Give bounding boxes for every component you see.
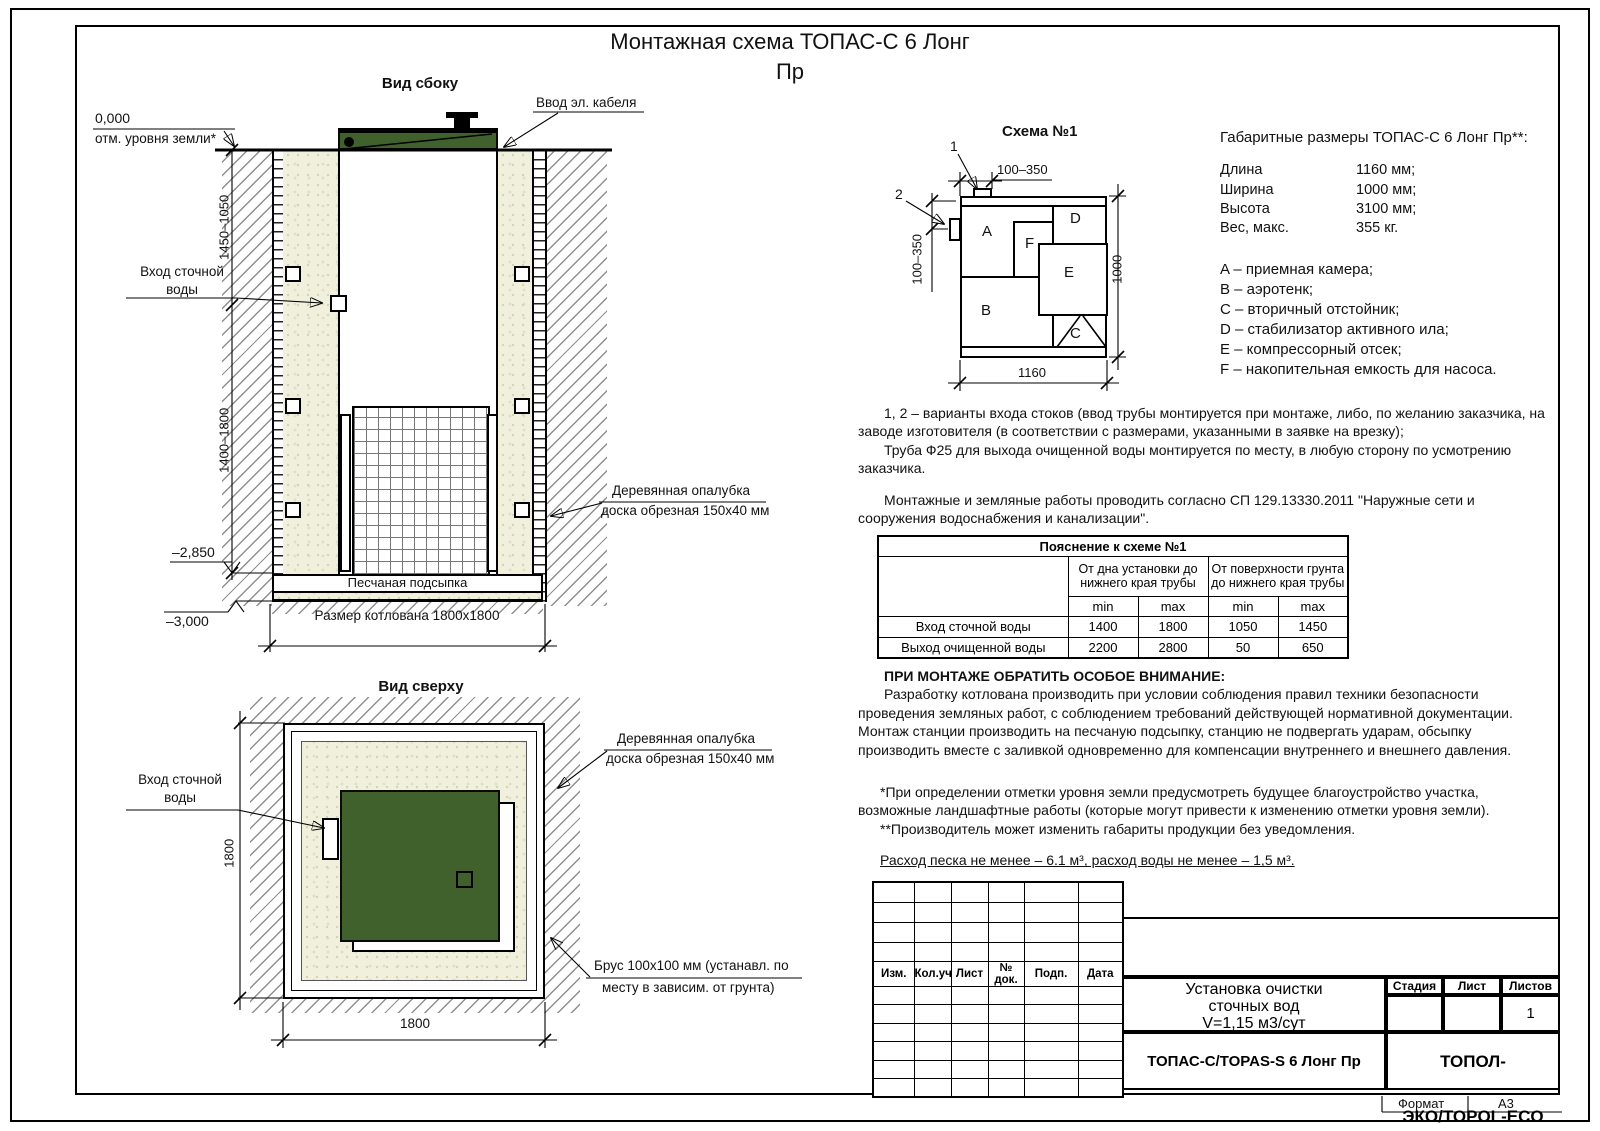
empty-cell (914, 1042, 951, 1061)
empty-cell (873, 902, 914, 922)
empty-cell (873, 1060, 914, 1079)
empty-cell (988, 942, 1024, 961)
empty-cell (988, 1079, 1024, 1098)
col-header-podp: Подп. (1024, 961, 1078, 986)
wall-block (285, 398, 301, 414)
sheet-title-line2: Пр (540, 60, 1040, 85)
empty-cell (1024, 1005, 1078, 1024)
empty-cell (951, 986, 988, 1005)
specs-heading: Габаритные размеры ТОПАС-С 6 Лонг Пр**: (1220, 130, 1528, 147)
empty-cell (1024, 882, 1078, 902)
attention-body: Разработку котлована производить при усл… (858, 685, 1550, 759)
table-min-header: min (1068, 596, 1138, 616)
col-header-koluch: Кол.уч. (914, 961, 951, 986)
compartment-a-label: A (982, 224, 992, 241)
schema-dim-right: 1000 (1111, 237, 1126, 301)
note-outlet-pipe: Труба Ф25 для выхода очищенной воды монт… (858, 441, 1550, 478)
footnote-manufacturer: **Производитель может изменить габариты … (858, 820, 1550, 838)
sand-bedding-label: Песчаная подсыпка (272, 576, 543, 591)
empty-cell (988, 902, 1024, 922)
empty-cell (1024, 902, 1078, 922)
schema-dim-bottom: 1160 (1010, 366, 1054, 381)
col-header-data: Дата (1078, 961, 1123, 986)
empty-cell (951, 922, 988, 942)
row-value: 1800 (1138, 616, 1208, 637)
compartment-e-label: E (1064, 265, 1074, 282)
schema-inlet-stub-2 (949, 218, 961, 241)
empty-cell (873, 922, 914, 942)
note-variants: 1, 2 – варианты входа стоков (ввод трубы… (858, 404, 1550, 441)
empty-cell (1078, 1023, 1123, 1042)
spec-value: 355 кг. (1356, 220, 1398, 236)
project-name-line1: Установка очистки (1124, 981, 1384, 998)
format-value: А3 (1498, 1097, 1514, 1112)
row-value: 650 (1278, 637, 1348, 658)
empty-cell (873, 942, 914, 961)
pit-size-label: Размер котлована 1800х1800 (262, 608, 552, 623)
sheets-header-cell: Листов (1501, 977, 1560, 995)
ballast-post-right (487, 414, 498, 572)
row-value: 50 (1208, 637, 1278, 658)
soil-hatch-right (543, 150, 607, 606)
company-cell: ТОПОЛ-ЭКО/TOPOL-ECO (1386, 1032, 1560, 1090)
sheet-title-line1: Монтажная схема ТОПАС-С 6 Лонг (540, 30, 1040, 55)
empty-cell (951, 902, 988, 922)
stage-header-cell: Стадия (1386, 977, 1443, 995)
legend-item: A – приемная камера; (1220, 262, 1373, 279)
empty-cell (988, 1060, 1024, 1079)
dim-1400-1800: 1400–1800 (218, 405, 233, 475)
sheet-value-cell (1443, 995, 1501, 1032)
empty-cell (1024, 1060, 1078, 1079)
empty-cell (1078, 882, 1123, 902)
tv-inlet-stub (322, 818, 339, 860)
col-header-ndok: № док. (988, 961, 1024, 986)
tv-dim-bottom-1800: 1800 (383, 1016, 447, 1031)
tv-hatch-opening (456, 871, 473, 888)
empty-cell (873, 882, 914, 902)
schema-inlet-stub-1 (973, 188, 992, 198)
empty-cell (914, 1060, 951, 1079)
empty-cell (951, 1079, 988, 1098)
cable-entry-label: Ввод эл. кабеля (536, 95, 636, 110)
empty-cell (914, 882, 951, 902)
empty-cell (1078, 1060, 1123, 1079)
note-sp-standard: Монтажные и земляные работы проводить со… (858, 491, 1550, 528)
empty-cell (1078, 986, 1123, 1005)
empty-cell (914, 922, 951, 942)
inlet-label-line2: воды (130, 282, 234, 297)
row-name: Вход сточной воды (878, 616, 1068, 637)
attention-heading: ПРИ МОНТАЖЕ ОБРАТИТЬ ОСОБОЕ ВНИМАНИЕ: (858, 667, 1550, 685)
row-name: Выход очищенной воды (878, 637, 1068, 658)
lid-knob (344, 137, 354, 147)
notes-block: 1, 2 – варианты входа стоков (ввод трубы… (858, 404, 1550, 528)
ballast-grid (352, 406, 490, 576)
unit-lid (338, 128, 498, 150)
elevation-3000: –3,000 (166, 614, 209, 630)
compartment-c-label: C (1070, 326, 1081, 343)
compartment-f-label: F (1025, 236, 1034, 253)
row-value: 2200 (1068, 637, 1138, 658)
project-name-line3: V=1,15 м3/сут (1124, 1015, 1384, 1032)
consumption-note: Расход песка не менее – 6.1 м³, расход в… (858, 851, 1550, 869)
legend-item: B – аэротенк; (1220, 282, 1313, 299)
table-row: Вход сточной воды 1400 1800 1050 1450 (878, 616, 1348, 637)
schema-caption: Схема №1 (1002, 124, 1077, 141)
table-max-header: max (1138, 596, 1208, 616)
empty-cell (873, 986, 914, 1005)
compartment-b-label: B (981, 303, 991, 320)
empty-cell (1078, 1005, 1123, 1024)
drawing-sheet: Монтажная схема ТОПАС-С 6 Лонг Пр Вид сб… (0, 0, 1600, 1131)
empty-cell (988, 1042, 1024, 1061)
footnotes-block: *При определении отметки уровня земли пр… (858, 783, 1550, 870)
elevation-2850: –2,850 (172, 545, 215, 561)
side-view-caption: Вид сбоку (350, 76, 490, 93)
legend-item: E – компрессорный отсек; (1220, 342, 1402, 359)
dim-1450-1050: 1450–1050 (218, 192, 233, 262)
table-group2-header: От поверхности грунта до нижнего края тр… (1208, 556, 1348, 596)
empty-cell (951, 1042, 988, 1061)
row-value: 1450 (1278, 616, 1348, 637)
empty-cell (951, 1060, 988, 1079)
spec-value: 1000 мм; (1356, 182, 1416, 198)
table-title: Пояснение к схеме №1 (878, 536, 1348, 556)
empty-cell (1024, 942, 1078, 961)
col-header-list: Лист (951, 961, 988, 986)
tv-formwork-label-line2: доска обрезная 150х40 мм (606, 751, 774, 766)
spec-label: Длина (1220, 162, 1262, 178)
tv-dim-left-1800: 1800 (223, 823, 238, 883)
row-value: 2800 (1138, 637, 1208, 658)
table-row: Выход очищенной воды 2200 2800 50 650 (878, 637, 1348, 658)
empty-cell (951, 1005, 988, 1024)
schema-callout-1: 1 (950, 139, 958, 155)
empty-cell (873, 1079, 914, 1098)
empty-cell (1024, 986, 1078, 1005)
schema-bottom-line (960, 346, 1107, 348)
formwork-label-line2: доска обрезная 150х40 мм (601, 503, 769, 518)
empty-cell (1024, 922, 1078, 942)
schema-top-line (960, 205, 1107, 207)
top-view-caption: Вид сверху (356, 679, 486, 696)
empty-cell (914, 1005, 951, 1024)
empty-cell (988, 882, 1024, 902)
empty-cell (1024, 1079, 1078, 1098)
empty-cell (1078, 1042, 1123, 1061)
formwork-board-right (532, 150, 547, 602)
explanation-table: Пояснение к схеме №1 От дна установки до… (877, 535, 1349, 659)
tv-inlet-label-line2: воды (128, 790, 232, 805)
tv-inlet-label-line1: Вход сточной (128, 772, 232, 787)
legend-item: D – стабилизатор активного ила; (1220, 322, 1449, 339)
col-header-izm: Изм. (873, 961, 914, 986)
empty-cell (873, 1042, 914, 1061)
spec-value: 1160 мм; (1356, 162, 1415, 178)
project-name-cell: Установка очистки сточных вод V=1,15 м3/… (1122, 977, 1386, 1032)
ballast-post-left (340, 414, 351, 572)
empty-cell (1024, 1023, 1078, 1042)
empty-cell (1078, 1079, 1123, 1098)
project-name-line2: сточных вод (1124, 998, 1384, 1015)
zero-mark-label: 0,000 (95, 111, 130, 127)
empty-cell (914, 902, 951, 922)
wall-block (285, 266, 301, 282)
spec-label: Вес, макс. (1220, 220, 1289, 236)
model-cell: ТОПАС-С/TOPAS-S 6 Лонг Пр (1122, 1032, 1386, 1090)
empty-cell (873, 1005, 914, 1024)
table-group1-header: От дна установки до нижнего края трубы (1068, 556, 1208, 596)
spec-value: 3100 мм; (1356, 201, 1416, 217)
vent-stem (454, 118, 470, 129)
format-label: Формат (1398, 1097, 1444, 1112)
compartment-d-label: D (1070, 211, 1081, 228)
empty-cell (951, 882, 988, 902)
stage-value-cell (1386, 995, 1443, 1032)
inlet-stub (330, 295, 347, 312)
schema-callout-2: 2 (895, 187, 903, 203)
row-value: 1050 (1208, 616, 1278, 637)
attention-block: ПРИ МОНТАЖЕ ОБРАТИТЬ ОСОБОЕ ВНИМАНИЕ: Ра… (858, 667, 1550, 759)
designation-cell (1122, 917, 1560, 977)
spec-label: Ширина (1220, 182, 1274, 198)
footnote-ground-level: *При определении отметки уровня земли пр… (858, 783, 1550, 820)
empty-cell (914, 1023, 951, 1042)
empty-cell (988, 986, 1024, 1005)
inlet-label-line1: Вход сточной (130, 264, 234, 279)
table-min-header: min (1208, 596, 1278, 616)
empty-cell (988, 1023, 1024, 1042)
table-corner-cell (878, 556, 1068, 616)
empty-cell (988, 922, 1024, 942)
empty-cell (1024, 1042, 1078, 1061)
row-value: 1400 (1068, 616, 1138, 637)
spec-label: Высота (1220, 201, 1270, 217)
sheet-header-cell: Лист (1443, 977, 1501, 995)
empty-cell (1078, 902, 1123, 922)
wall-block (514, 502, 530, 518)
legend-item: F – накопительная емкость для насоса. (1220, 362, 1497, 379)
table-max-header: max (1278, 596, 1348, 616)
tv-formwork-label-line1: Деревянная опалубка (617, 731, 755, 746)
schema-dim-left: 100–350 (911, 229, 926, 289)
timber-label-line1: Брус 100х100 мм (устанавл. по (594, 958, 789, 973)
empty-cell (914, 1079, 951, 1098)
title-block-revision-grid: Изм. Кол.уч. Лист № док. Подп. Дата (872, 881, 1124, 1098)
tv-unit-lid (340, 790, 500, 942)
empty-cell (914, 986, 951, 1005)
empty-cell (988, 1005, 1024, 1024)
empty-cell (1078, 942, 1123, 961)
empty-cell (914, 942, 951, 961)
formwork-label-line1: Деревянная опалубка (612, 483, 750, 498)
wall-block (514, 398, 530, 414)
empty-cell (951, 1023, 988, 1042)
timber-label-line2: месту в зависим. от грунта) (602, 980, 774, 995)
schema-dim-top: 100–350 (997, 163, 1048, 178)
empty-cell (951, 942, 988, 961)
empty-cell (1078, 922, 1123, 942)
legend-item: C – вторичный отстойник; (1220, 302, 1399, 319)
empty-cell (873, 1023, 914, 1042)
sheets-value-cell: 1 (1501, 995, 1560, 1032)
pit-bottom-strip (272, 593, 543, 602)
wall-block (285, 502, 301, 518)
ground-level-note: отм. уровня земли* (95, 131, 216, 146)
wall-block (514, 266, 530, 282)
